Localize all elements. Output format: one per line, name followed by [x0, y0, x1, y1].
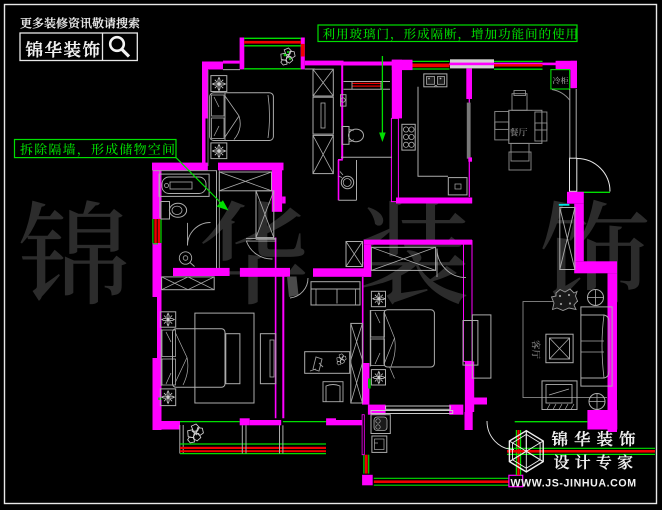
svg-text:WWW.JS-JINHUA.COM: WWW.JS-JINHUA.COM — [511, 478, 637, 490]
